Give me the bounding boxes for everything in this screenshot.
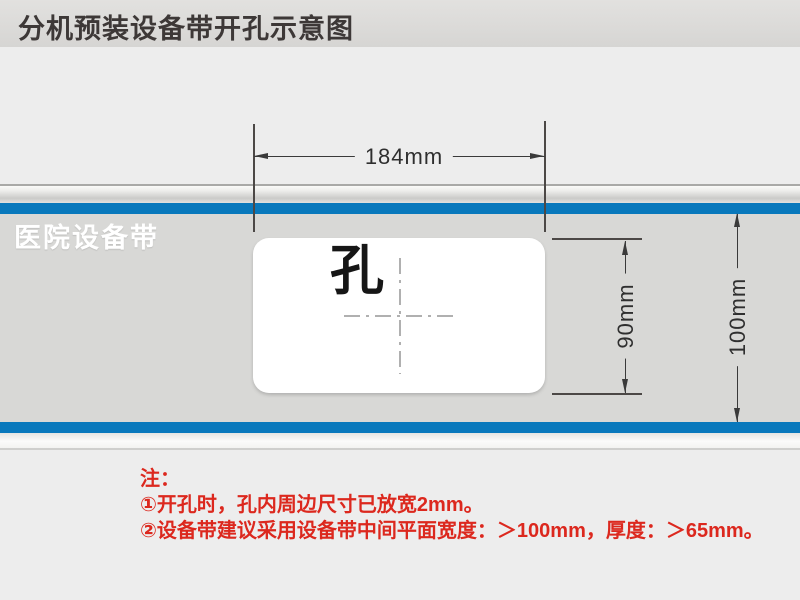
centerline-horizontal: [344, 315, 458, 317]
page-title: 分机预装设备带开孔示意图: [18, 7, 354, 46]
band-label: 医院设备带: [14, 216, 159, 255]
dim-arrow-right: [530, 153, 544, 159]
diagram-stage: 分机预装设备带开孔示意图 医院设备带 孔 184mm 90mm: [0, 0, 800, 600]
dim-arrow-up-100: [734, 213, 740, 227]
band-top-highlight: [0, 186, 800, 203]
dim-width-label: 184mm: [355, 144, 453, 170]
dim-arrow-left: [254, 153, 268, 159]
dim-arrow-down-90: [622, 379, 628, 393]
dim-arrow-down-100: [734, 408, 740, 422]
dim-hole-height-label: 90mm: [613, 273, 639, 358]
band-bottom-blue-stripe: [0, 422, 800, 433]
notes-heading: 注：: [140, 466, 764, 492]
note-line-2: ②设备带建议采用设备带中间平面宽度：＞100mm，厚度：＞65mm。: [140, 518, 764, 544]
band-bottom-highlight: [0, 433, 800, 448]
band-bottom-edge-line: [0, 448, 800, 450]
extension-line-right: [544, 121, 546, 232]
hole-label: 孔: [330, 242, 384, 301]
notes-section: 注： ①开孔时，孔内周边尺寸已放宽2mm。 ②设备带建议采用设备带中间平面宽度：…: [140, 466, 764, 544]
dim-band-height-label: 100mm: [725, 268, 751, 366]
dim-arrow-up-90: [622, 241, 628, 255]
band-top-blue-stripe: [0, 203, 800, 214]
extension-line-hole-top: [552, 238, 642, 240]
extension-line-hole-bottom: [552, 393, 642, 395]
extension-line-left: [253, 124, 255, 232]
note-line-1: ①开孔时，孔内周边尺寸已放宽2mm。: [140, 492, 764, 518]
title-bar: 分机预装设备带开孔示意图: [0, 0, 800, 47]
